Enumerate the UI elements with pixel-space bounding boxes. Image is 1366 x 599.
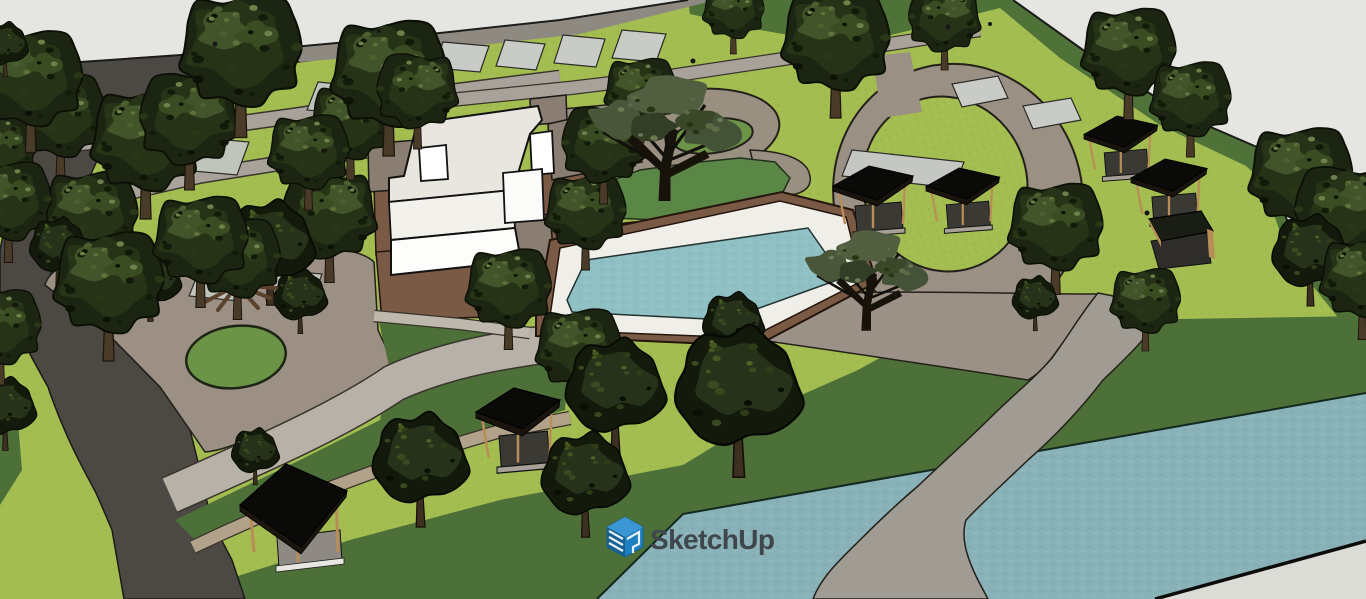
svg-text:SketchUp: SketchUp xyxy=(650,524,774,555)
